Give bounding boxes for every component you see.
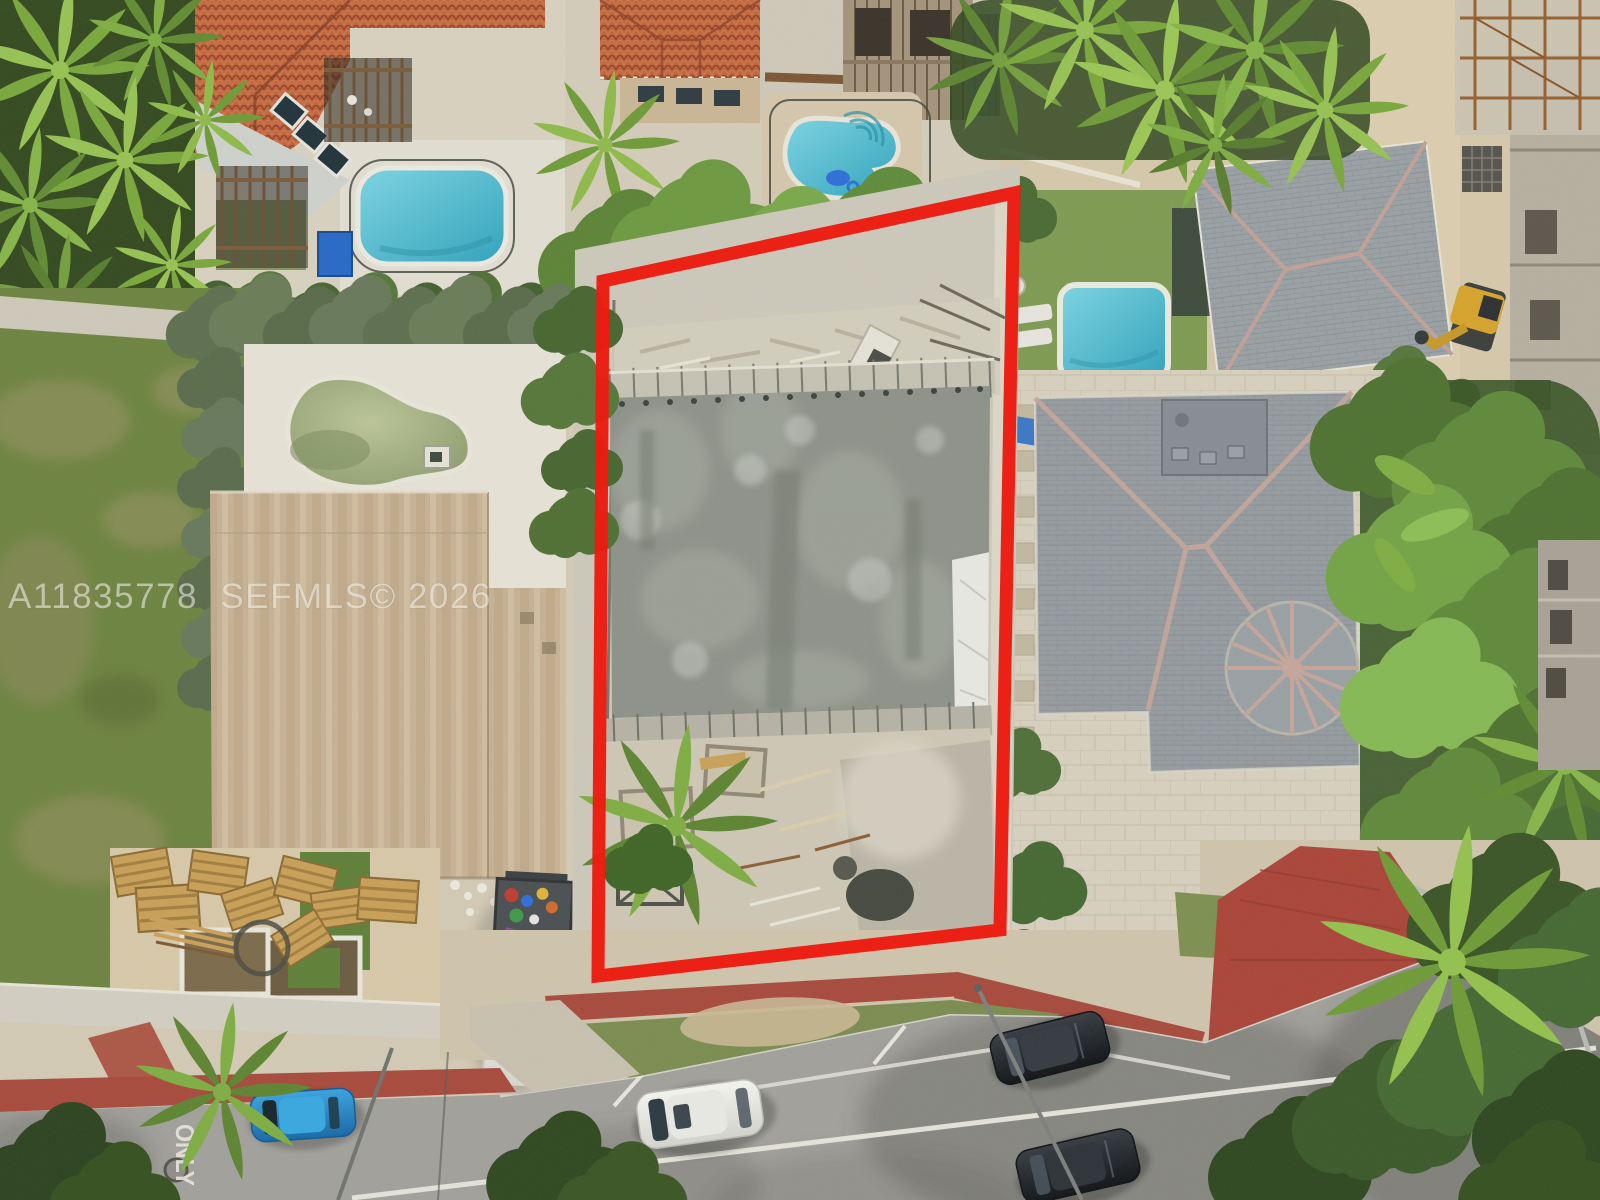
- aerial-photo-stage: ONLY: [0, 0, 1600, 1200]
- photo-grain: [0, 0, 1600, 1200]
- aerial-photo: ONLY: [0, 0, 1600, 1200]
